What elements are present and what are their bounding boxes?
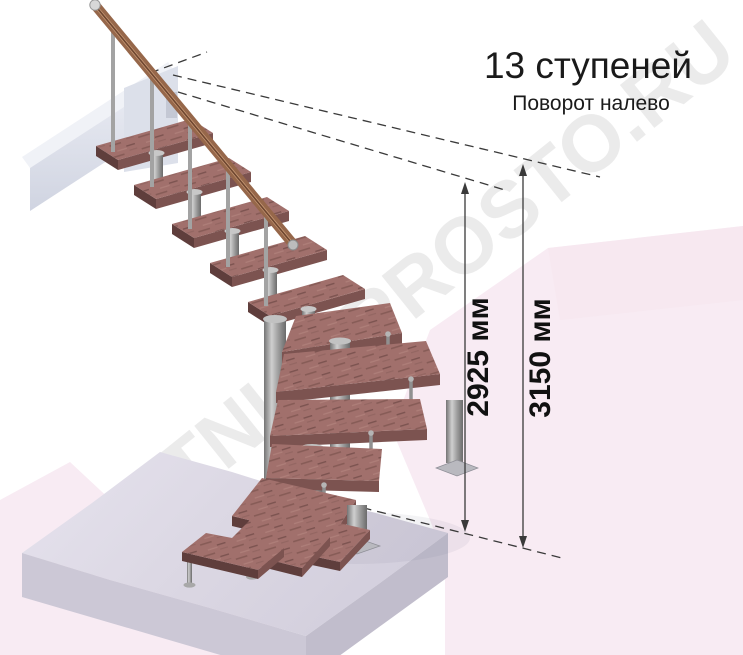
support-column (446, 400, 463, 463)
tread-6 (270, 399, 427, 447)
staircase-illustration: LESTNICI-PROSTO.RU (0, 0, 743, 655)
baluster (226, 164, 230, 267)
staircase-diagram-page: LESTNICI-PROSTO.RU (0, 0, 743, 655)
baluster (111, 25, 115, 152)
dimension-label-outer: 3150 мм (524, 298, 557, 417)
baluster (264, 210, 268, 306)
title-block: 13 ступеней Поворот налево (484, 45, 692, 115)
handrail-top-cap (90, 0, 100, 10)
baluster (150, 72, 154, 187)
handrail-end-cap (288, 240, 298, 250)
page-title: 13 ступеней (484, 45, 692, 86)
dimension-label-inner: 2925 мм (462, 297, 495, 416)
page-subtitle: Поворот налево (512, 92, 670, 115)
baluster (188, 118, 192, 229)
